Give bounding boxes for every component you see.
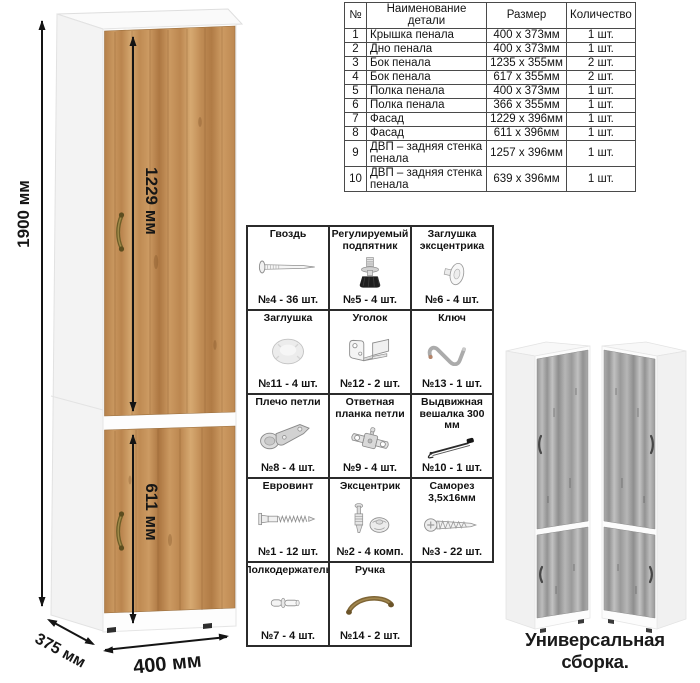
hardware-item-nail: Гвоздь №4 - 36 шт.	[248, 227, 330, 311]
cabinet-foot	[203, 623, 212, 629]
table-row: 8Фасад611 x 396мм1 шт.	[345, 126, 636, 140]
table-row: 6Полка пенала366 x 355мм1 шт.	[345, 98, 636, 112]
part-qty: 2 шт.	[567, 70, 636, 84]
part-num: 2	[345, 42, 367, 56]
part-size: 611 x 396мм	[487, 126, 567, 140]
hardware-item-handle: Ручка №14 - 2 шт.	[330, 563, 412, 647]
hardware-item-label: Регулируемый подпятник	[331, 229, 409, 252]
part-qty: 2 шт.	[567, 56, 636, 70]
table-row: 5Полка пенала400 x 373мм1 шт.	[345, 84, 636, 98]
part-size: 400 x 373мм	[487, 42, 567, 56]
lower-door	[105, 426, 236, 613]
upper-door	[105, 26, 236, 416]
hardware-item-label: Гвоздь	[270, 229, 307, 241]
col-header-size: Размер	[487, 3, 567, 29]
cam-cover-icon	[423, 252, 481, 294]
hardware-item-label: Саморез 3,5х16мм	[413, 481, 491, 504]
part-qty: 1 шт.	[567, 42, 636, 56]
part-name: Фасад	[367, 112, 487, 126]
part-name: ДВП – задняя стенка пенала	[367, 140, 487, 166]
hardware-item-label: Уголок	[353, 313, 388, 325]
assembly-sheet: 1900 мм 1229 мм 611 мм 375 мм	[0, 0, 700, 683]
hardware-item-count: №2 - 4 комп.	[336, 546, 403, 558]
cap-icon	[256, 325, 320, 378]
part-name: ДВП – задняя стенка пенала	[367, 166, 487, 192]
width-dimension-arrow: 400 мм	[103, 633, 230, 679]
pullout-hanger-icon	[420, 432, 484, 462]
col-header-qty: Количество	[567, 3, 636, 29]
hinge-plate-icon	[341, 420, 399, 462]
table-row: 9ДВП – задняя стенка пенала1257 x 396мм1…	[345, 140, 636, 166]
hardware-item-label: Полкодержатель	[248, 565, 330, 577]
part-num: 4	[345, 70, 367, 84]
hardware-item-confirmat-screw: Евровинт №1 - 12 шт.	[248, 479, 330, 563]
cabinet-side-panel	[51, 14, 103, 631]
hardware-item-label: Выдвижная вешалка 300 мм	[413, 397, 491, 432]
confirmat-screw-icon	[255, 493, 321, 546]
hardware-item-self-tapping-screw: Саморез 3,5х16мм №3 - 22 шт.	[412, 479, 494, 563]
lower-door-dimension-label: 611 мм	[142, 483, 161, 540]
part-qty: 1 шт.	[567, 98, 636, 112]
hardware-item-count: №3 - 22 шт.	[422, 546, 482, 558]
part-num: 6	[345, 98, 367, 112]
table-row: 1Крышка пенала400 x 373мм1 шт.	[345, 28, 636, 42]
furniture-handle-icon	[338, 577, 402, 630]
part-name: Дно пенала	[367, 42, 487, 56]
part-qty: 1 шт.	[567, 126, 636, 140]
hardware-item-count: №5 - 4 шт.	[343, 294, 397, 306]
hardware-item-label: Ручка	[355, 565, 385, 577]
part-size: 400 x 373мм	[487, 84, 567, 98]
self-tapping-screw-icon	[421, 504, 483, 546]
universal-assembly-caption: Универсальная сборка.	[490, 629, 700, 673]
hardware-item-count: №8 - 4 шт.	[261, 462, 315, 474]
part-name: Бок пенала	[367, 56, 487, 70]
table-row: 4Бок пенала617 x 355мм2 шт.	[345, 70, 636, 84]
table-row: 3Бок пенала1235 x 355мм2 шт.	[345, 56, 636, 70]
shelf-pin-icon	[260, 577, 316, 630]
part-size: 366 x 355мм	[487, 98, 567, 112]
part-num: 7	[345, 112, 367, 126]
col-header-name: Наименование детали	[367, 3, 487, 29]
hardware-item-count: №4 - 36 шт.	[258, 294, 318, 306]
hardware-item-adjustable-foot: Регулируемый подпятник №5 - 4 шт.	[330, 227, 412, 311]
hardware-item-hinge-arm: Плечо петли №8 - 4 шт.	[248, 395, 330, 479]
hardware-item-count: №10 - 1 шт.	[422, 462, 482, 474]
hardware-item-count: №13 - 1 шт.	[422, 378, 482, 390]
hardware-item-count: №11 - 4 шт.	[258, 378, 318, 390]
part-size: 639 x 396мм	[487, 166, 567, 192]
hardware-item-label: Эксцентрик	[340, 481, 400, 493]
cabinet-variant-left	[506, 342, 590, 633]
hardware-item-label: Плечо петли	[255, 397, 320, 409]
part-size: 1229 x 396мм	[487, 112, 567, 126]
hardware-item-count: №14 - 2 шт.	[340, 630, 400, 642]
hardware-item-count: №6 - 4 шт.	[425, 294, 479, 306]
hardware-item-shelf-pin: Полкодержатель №7 - 4 шт.	[248, 563, 330, 647]
hardware-item-label: Заглушка	[264, 313, 313, 325]
cabinet-foot	[107, 627, 116, 633]
hardware-grid: Гвоздь №4 - 36 шт. Регулируемый подпятни…	[246, 225, 494, 647]
table-header-row: № Наименование детали Размер Количество	[345, 3, 636, 29]
part-name: Крышка пенала	[367, 28, 487, 42]
part-num: 8	[345, 126, 367, 140]
tall-cabinet-illustration: 1900 мм 1229 мм 611 мм 375 мм	[0, 0, 250, 683]
part-size: 400 x 373мм	[487, 28, 567, 42]
hardware-item-label: Заглушка эксцентрика	[413, 229, 491, 252]
table-row: 10ДВП – задняя стенка пенала639 x 396мм1…	[345, 166, 636, 192]
part-num: 1	[345, 28, 367, 42]
hardware-item-hex-key: Ключ №13 - 1 шт.	[412, 311, 494, 395]
table-row: 7Фасад1229 x 396мм1 шт.	[345, 112, 636, 126]
part-num: 10	[345, 166, 367, 192]
hardware-grid-empty-cell	[412, 563, 494, 647]
cam-lock-icon	[340, 493, 400, 546]
hardware-item-label: Евровинт	[263, 481, 314, 493]
part-name: Фасад	[367, 126, 487, 140]
parts-table: № Наименование детали Размер Количество …	[344, 2, 636, 192]
hardware-item-cam-lock: Эксцентрик №2 - 4 комп.	[330, 479, 412, 563]
hardware-item-count: №1 - 12 шт.	[258, 546, 318, 558]
corner-bracket-icon	[339, 325, 401, 378]
part-name: Полка пенала	[367, 84, 487, 98]
universal-assembly-illustration	[496, 338, 696, 638]
part-size: 617 x 355мм	[487, 70, 567, 84]
part-qty: 1 шт.	[567, 84, 636, 98]
hardware-item-label: Ключ	[438, 313, 466, 325]
height-dimension-arrow: 1900 мм	[14, 20, 46, 607]
table-row: 2Дно пенала400 x 373мм1 шт.	[345, 42, 636, 56]
upper-door-dimension-label: 1229 мм	[142, 167, 161, 235]
hex-key-icon	[422, 325, 482, 378]
part-size: 1257 x 396мм	[487, 140, 567, 166]
hardware-item-label: Ответная планка петли	[331, 397, 409, 420]
hardware-item-cam-cover: Заглушка эксцентрика №6 - 4 шт.	[412, 227, 494, 311]
hardware-item-count: №9 - 4 шт.	[343, 462, 397, 474]
adjustable-foot-icon	[340, 252, 400, 294]
part-size: 1235 x 355мм	[487, 56, 567, 70]
hardware-item-count: №12 - 2 шт.	[340, 378, 400, 390]
part-qty: 1 шт.	[567, 140, 636, 166]
part-qty: 1 шт.	[567, 166, 636, 192]
part-name: Бок пенала	[367, 70, 487, 84]
part-num: 3	[345, 56, 367, 70]
hinge-arm-icon	[256, 409, 320, 462]
cabinet-variant-right	[602, 342, 686, 633]
hardware-item-count: №7 - 4 шт.	[261, 630, 315, 642]
part-num: 5	[345, 84, 367, 98]
width-dimension-label: 400 мм	[132, 650, 202, 679]
part-num: 9	[345, 140, 367, 166]
part-qty: 1 шт.	[567, 112, 636, 126]
hardware-item-corner-bracket: Уголок №12 - 2 шт.	[330, 311, 412, 395]
hardware-item-hinge-plate: Ответная планка петли №9 - 4 шт.	[330, 395, 412, 479]
hardware-item-cap: Заглушка №11 - 4 шт.	[248, 311, 330, 395]
hardware-item-pullout-hanger: Выдвижная вешалка 300 мм №10 - 1 шт.	[412, 395, 494, 479]
part-qty: 1 шт.	[567, 28, 636, 42]
part-name: Полка пенала	[367, 98, 487, 112]
col-header-num: №	[345, 3, 367, 29]
height-dimension-label: 1900 мм	[14, 180, 33, 248]
nail-icon	[255, 241, 321, 294]
